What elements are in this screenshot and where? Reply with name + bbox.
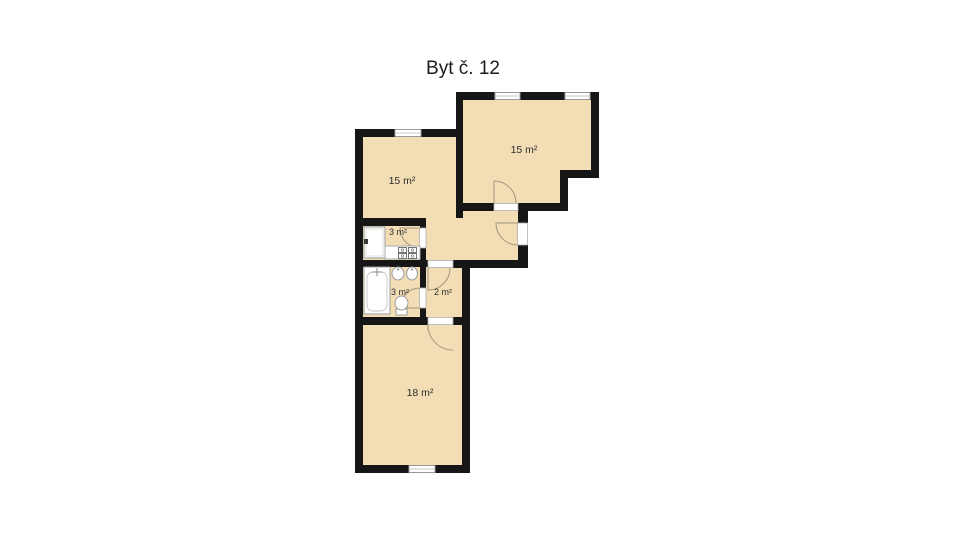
wall-between-top-rooms xyxy=(456,92,463,218)
wall-bathroom-right-upper xyxy=(420,267,426,288)
sink-icon xyxy=(407,267,418,280)
floor-areas xyxy=(363,100,591,465)
wall-top-right-room-right xyxy=(591,92,599,178)
wall-bathroom-right-lower xyxy=(420,308,426,317)
floor-room-top-right xyxy=(463,100,591,170)
room-label-top-left: 15 m² xyxy=(389,175,416,187)
window-icon xyxy=(409,466,435,473)
floor-plan-page: Byt č. 12 15 m² 15 m² 3 m² 3 m² 2 m² 18 … xyxy=(0,0,960,540)
fridge-icon xyxy=(364,227,385,258)
window-icon xyxy=(495,93,520,100)
room-label-bathroom: 3 m² xyxy=(391,287,409,297)
room-label-top-right: 15 m² xyxy=(511,144,538,156)
stove-icon xyxy=(385,246,420,259)
window-icon xyxy=(565,93,590,100)
wall-kitchen-bathroom-divider xyxy=(355,260,428,267)
floor-hallway xyxy=(425,203,518,261)
room-label-vestibule: 2 m² xyxy=(434,287,452,297)
wall-bottom-room-right xyxy=(462,317,470,473)
floor-plan-canvas xyxy=(0,0,960,540)
wall-vestibule-right xyxy=(462,260,470,317)
wall-top-right-room-bottom-left xyxy=(456,203,494,211)
bathtub-icon xyxy=(364,267,390,314)
wall-hallway-right-upper xyxy=(518,203,528,223)
wall-kitchen-right-lower xyxy=(420,248,426,262)
floor-room-top-right-lower xyxy=(463,170,560,203)
wall-kitchen-right-upper xyxy=(420,218,426,228)
plan-title: Byt č. 12 xyxy=(426,58,500,80)
wall-top-left-room-bottom xyxy=(355,218,425,226)
window-icon xyxy=(395,130,421,137)
room-label-kitchen: 3 m² xyxy=(389,227,407,237)
wall-exterior-left xyxy=(355,129,363,473)
wall-hallway-right-lower xyxy=(518,245,528,261)
toilet-icon xyxy=(395,296,408,315)
wall-bottom-room-top-left xyxy=(355,317,428,325)
room-label-bottom: 18 m² xyxy=(407,387,434,399)
sink-icon xyxy=(392,267,404,280)
